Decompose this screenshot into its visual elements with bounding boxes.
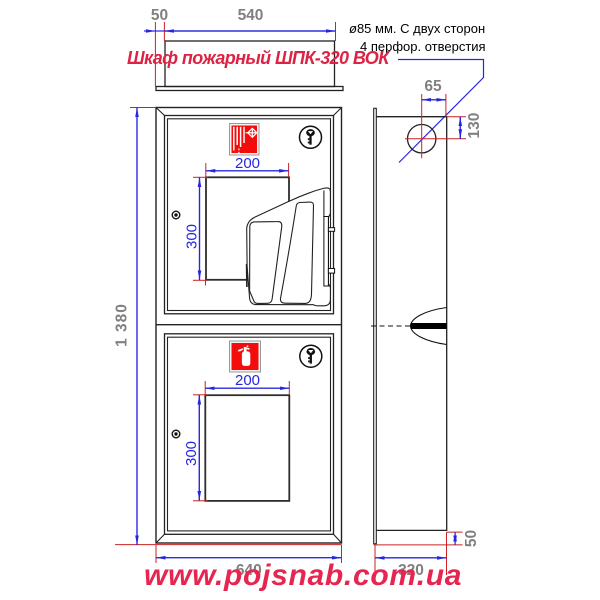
svg-text:1 380: 1 380 — [114, 303, 131, 347]
svg-text:300: 300 — [183, 441, 200, 466]
svg-text:50: 50 — [463, 530, 480, 547]
svg-text:300: 300 — [184, 224, 201, 249]
svg-text:Шкаф пожарный ШПК-320 ВОК: Шкаф пожарный ШПК-320 ВОК — [127, 48, 391, 68]
svg-text:200: 200 — [235, 155, 260, 172]
svg-text:65: 65 — [424, 78, 442, 95]
svg-text:540: 540 — [238, 7, 264, 24]
svg-text:130: 130 — [466, 113, 483, 139]
svg-text:www.pojsnab.com.ua: www.pojsnab.com.ua — [144, 559, 462, 592]
svg-text:ø85 мм. С двух сторон: ø85 мм. С двух сторон — [349, 21, 485, 36]
svg-text:200: 200 — [235, 372, 260, 389]
svg-text:50: 50 — [151, 7, 168, 24]
